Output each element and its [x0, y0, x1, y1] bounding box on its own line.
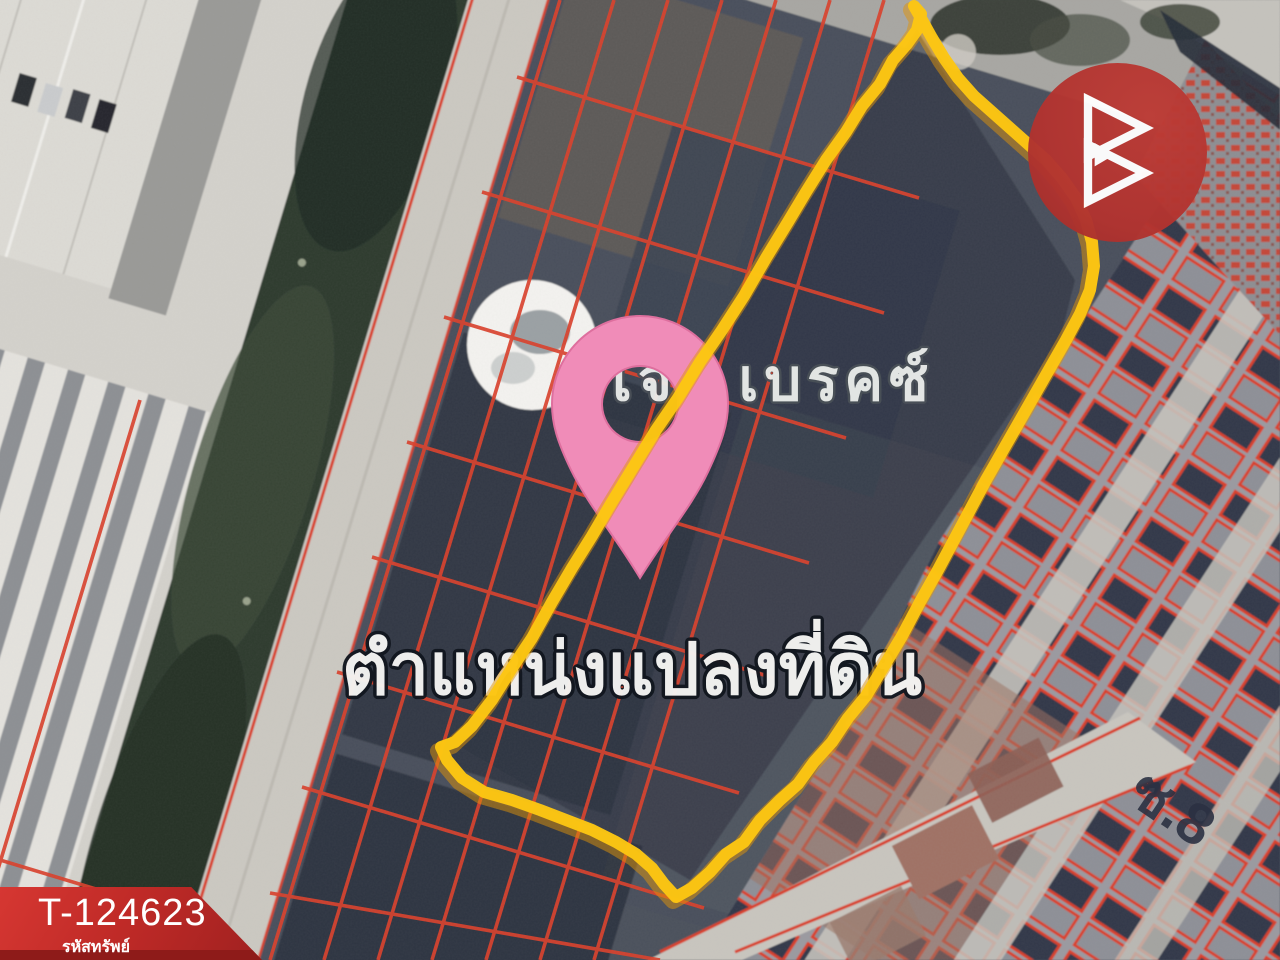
- property-code-badge: T-124623 รหัสทรัพย์: [0, 887, 262, 960]
- brand-logo: [1028, 63, 1207, 242]
- brand-logo-monogram-icon: [1043, 78, 1193, 228]
- real-estate-map-image: ซ.8 เจา เบรคซ์ ตำแหน่งแปลงที่ดิน T-12462…: [0, 0, 1280, 960]
- property-code-caption: รหัสทรัพย์: [62, 935, 130, 960]
- plot-caption-label: ตำแหน่งแปลงที่ดิน: [342, 618, 922, 710]
- badge-bottom-strip: [0, 950, 262, 960]
- property-code: T-124623: [38, 893, 207, 935]
